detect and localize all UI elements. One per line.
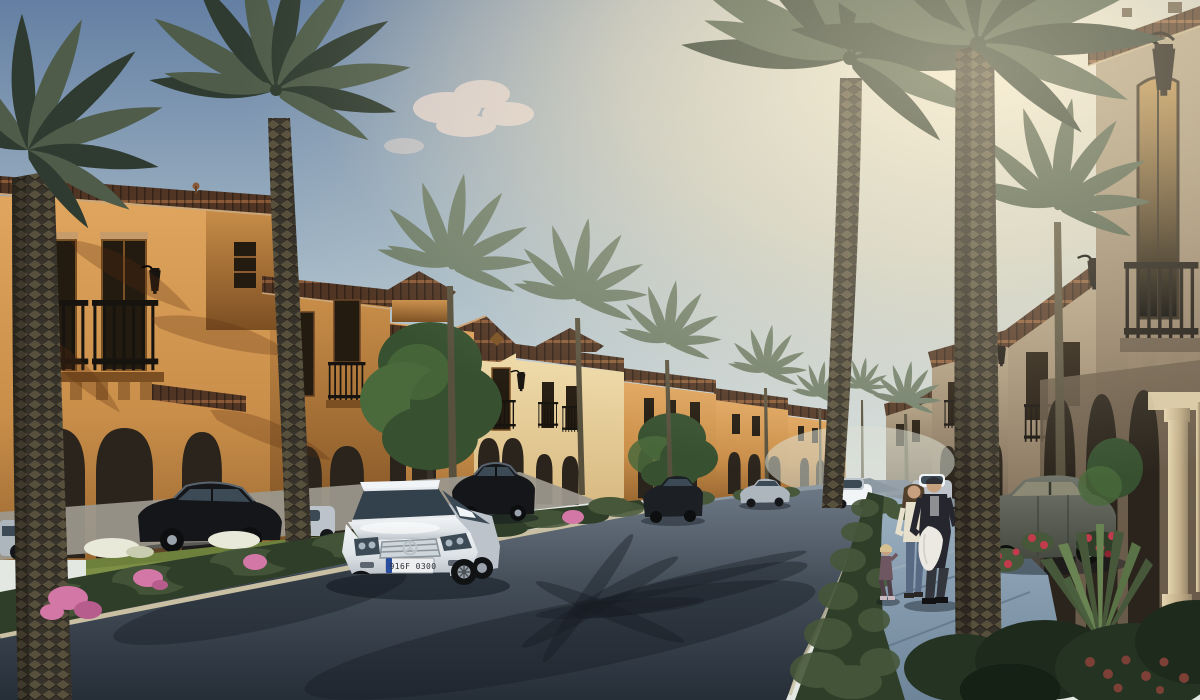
- render-canvas: Mediterranean villa community street - a…: [0, 0, 1200, 700]
- street-scene: Mediterranean villa community street - a…: [0, 0, 1200, 700]
- warm-light-overlay: [0, 0, 1200, 700]
